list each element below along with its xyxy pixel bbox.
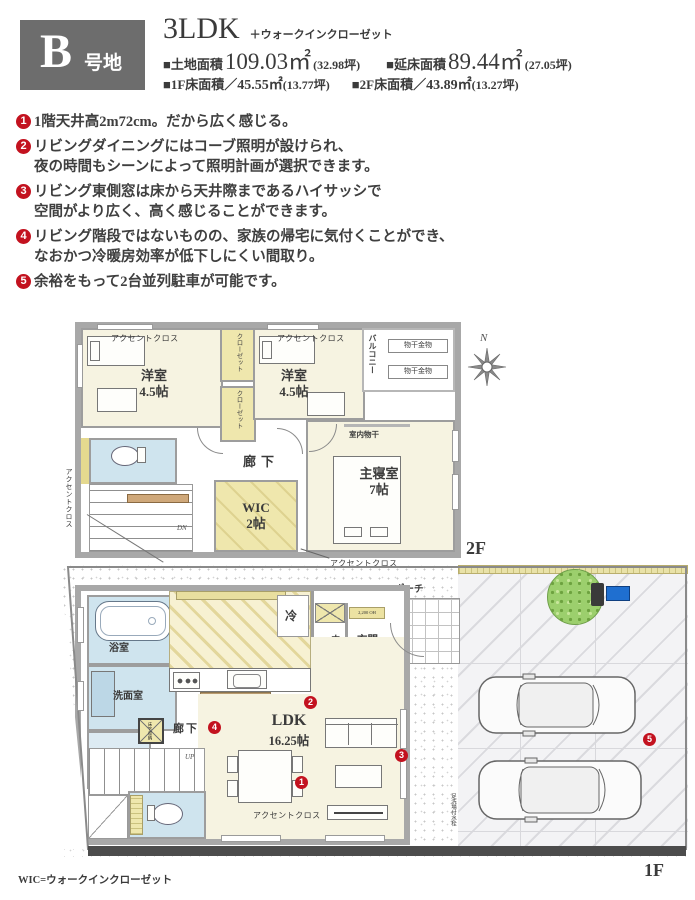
- site-plan: 5 ポーチ 足洗場付水栓 アクセントクロス アクセントクロス 浴室 洗面室 洗: [60, 565, 688, 857]
- accent-strip: [130, 795, 143, 835]
- feature-number-badge: 3: [16, 184, 31, 199]
- up-label: UP: [185, 753, 194, 761]
- window-mark: [325, 835, 385, 842]
- layout-type: 3LDK: [163, 12, 240, 45]
- marker-number: 2: [308, 697, 313, 707]
- pillow: [262, 341, 272, 359]
- road-edge-band: [88, 846, 686, 856]
- window-mark: [221, 835, 281, 842]
- layout-suffix: ＋ウォークインクローゼット: [250, 29, 393, 41]
- door-arc-icon: [277, 428, 303, 454]
- room-label-yoshitsu-2: 洋室 4.5帖: [259, 368, 329, 400]
- total-area-tsubo: (27.05坪): [525, 56, 572, 73]
- marker-4: 4: [208, 721, 221, 734]
- floor2-area-tsubo: (13.27坪): [472, 76, 519, 93]
- pillow: [370, 527, 388, 537]
- total-area-value: 89.44㎡: [448, 42, 523, 76]
- plot-suffix: 号地: [84, 48, 122, 75]
- toilet-tank: [147, 805, 155, 821]
- feature-item-5: 5 余裕をもって2台並列駐車が可能です。: [16, 272, 616, 292]
- indoor-drying-label: 室内物干: [349, 429, 379, 440]
- room-name: 主寝室: [359, 466, 398, 481]
- feature-text: リビング東側窓は床から天井際まであるハイサッシで: [34, 184, 382, 200]
- feature-text: リビング階段ではないものの、家族の帰宅に気付くことができ、: [34, 229, 453, 245]
- feature-item-2: 2 リビングダイニングにはコーブ照明が設けられ、 夜の時間もシーンによって照明計…: [16, 137, 616, 177]
- window-mark: [452, 474, 459, 510]
- feature-text: なおかつ冷暖房効率が低下しにくい間取り。: [34, 249, 323, 265]
- accent-cloth-label: アクセントクロス: [64, 468, 74, 558]
- marker-number: 5: [647, 734, 652, 744]
- feature-number-badge: 5: [16, 274, 31, 289]
- accent-cloth-label: アクセントクロス: [253, 810, 321, 821]
- window-mark: [452, 430, 459, 462]
- corridor-label: 廊下: [243, 454, 279, 470]
- floor-label-1f: 1F: [644, 860, 664, 882]
- monohoshi-text: 物干金物: [404, 341, 432, 349]
- window-mark: [77, 607, 84, 643]
- room-size: 4.5帖: [279, 384, 308, 399]
- plot-badge: B 号地: [20, 20, 145, 90]
- marker-1: 1: [295, 776, 308, 789]
- wic-note: WIC=ウォークインクローゼット: [18, 872, 172, 887]
- marker-5: 5: [643, 733, 656, 746]
- accent-cloth-label: アクセントクロス: [277, 333, 345, 344]
- closet-label: クローゼット: [233, 390, 243, 438]
- room-size: 2帖: [246, 516, 266, 531]
- pillow: [344, 527, 362, 537]
- marker-2: 2: [304, 696, 317, 709]
- toilet-icon: [153, 803, 183, 825]
- clothes-dry-hardware-label: 物干金物: [388, 365, 448, 379]
- wic-label: WIC 2帖: [226, 500, 286, 532]
- marker-number: 1: [299, 777, 304, 787]
- marker-number: 3: [399, 750, 404, 760]
- floor-plan-2f: DN アクセントクロス アクセントクロス 洋室 4.5帖 洋室: [75, 322, 461, 558]
- feature-text: リビングダイニングにはコーブ照明が設けられ、: [34, 139, 352, 155]
- feature-item-4: 4 リビング階段ではないものの、家族の帰宅に気付くことができ、 なおかつ冷暖房効…: [16, 227, 616, 267]
- marker-3: 3: [395, 749, 408, 762]
- floor-label-2f: 2F: [466, 538, 486, 560]
- floor1-area-tsubo: (13.77坪): [283, 76, 330, 93]
- room-name: WIC: [242, 500, 269, 515]
- balcony-label: バルコニー: [367, 334, 378, 386]
- feature-item-1: 1 1階天井高2m72cm。だから広く感じる。: [16, 112, 616, 132]
- toilet-tank: [137, 447, 146, 463]
- window-mark: [400, 759, 407, 799]
- master-bedroom-label: 主寝室 7帖: [339, 466, 419, 498]
- plot-letter: B: [40, 24, 72, 79]
- window-mark: [77, 681, 84, 711]
- room-size: 4.5帖: [139, 384, 168, 399]
- feature-number-badge: 1: [16, 114, 31, 129]
- room-name: 洋室: [141, 368, 167, 383]
- room-name: 洋室: [281, 368, 307, 383]
- land-area-value: 109.03㎡: [225, 42, 311, 76]
- floor1-area-label: ■1F床面積／: [163, 74, 237, 93]
- feature-text: 1階天井高2m72cm。だから広く感じる。: [34, 114, 297, 130]
- indoor-drying-bar: [344, 424, 410, 427]
- floor2-area-label: ■2F床面積／: [352, 74, 426, 93]
- feature-list: 1 1階天井高2m72cm。だから広く感じる。 2 リビングダイニングにはコーブ…: [16, 112, 616, 297]
- monohoshi-text: 物干金物: [404, 367, 432, 375]
- total-area-label: ■延床面積: [386, 54, 446, 73]
- compass-icon: [466, 346, 508, 388]
- closet-label: クローゼット: [233, 333, 243, 379]
- floor2-area-value: 43.89㎡: [426, 74, 472, 94]
- room-label-yoshitsu-1: 洋室 4.5帖: [119, 368, 189, 400]
- pillow: [90, 341, 100, 361]
- area-row-1: ■土地面積 109.03㎡ (32.98坪) ■延床面積 89.44㎡ (27.…: [163, 42, 683, 76]
- feature-number-badge: 2: [16, 139, 31, 154]
- window-mark: [97, 324, 153, 330]
- feature-text: 空間がより広く、高く感じることができます。: [34, 204, 336, 220]
- layout-row: 3LDK ＋ウォークインクローゼット: [163, 12, 393, 46]
- floor1-area-value: 45.55㎡: [237, 74, 283, 94]
- feature-text: 夜の時間もシーンによって照明計画が選択できます。: [34, 159, 379, 175]
- window-mark: [400, 709, 407, 749]
- land-area-tsubo: (32.98坪): [313, 56, 360, 73]
- window-mark: [267, 324, 319, 330]
- compass-n-label: N: [480, 332, 487, 344]
- down-label: DN: [177, 524, 187, 532]
- clothes-dry-hardware-label: 物干金物: [388, 339, 448, 353]
- feature-item-3: 3 リビング東側窓は床から天井際まであるハイサッシで 空間がより広く、高く感じる…: [16, 182, 616, 222]
- feature-number-badge: 4: [16, 229, 31, 244]
- area-row-2: ■1F床面積／ 45.55㎡ (13.77坪) ■2F床面積／ 43.89㎡ (…: [163, 74, 683, 94]
- room-size: 7帖: [369, 482, 389, 497]
- window-mark: [77, 344, 83, 388]
- door-arc-icon: [197, 428, 223, 454]
- land-area-label: ■土地面積: [163, 54, 223, 73]
- accent-cloth-label: アクセントクロス: [111, 333, 179, 344]
- marker-number: 4: [212, 722, 217, 732]
- handrail: [127, 494, 189, 503]
- flyer-page: B 号地 3LDK ＋ウォークインクローゼット ■土地面積 109.03㎡ (3…: [0, 0, 695, 900]
- toilet-icon: [111, 446, 139, 466]
- feature-text: 余裕をもって2台並列駐車が可能です。: [34, 274, 286, 290]
